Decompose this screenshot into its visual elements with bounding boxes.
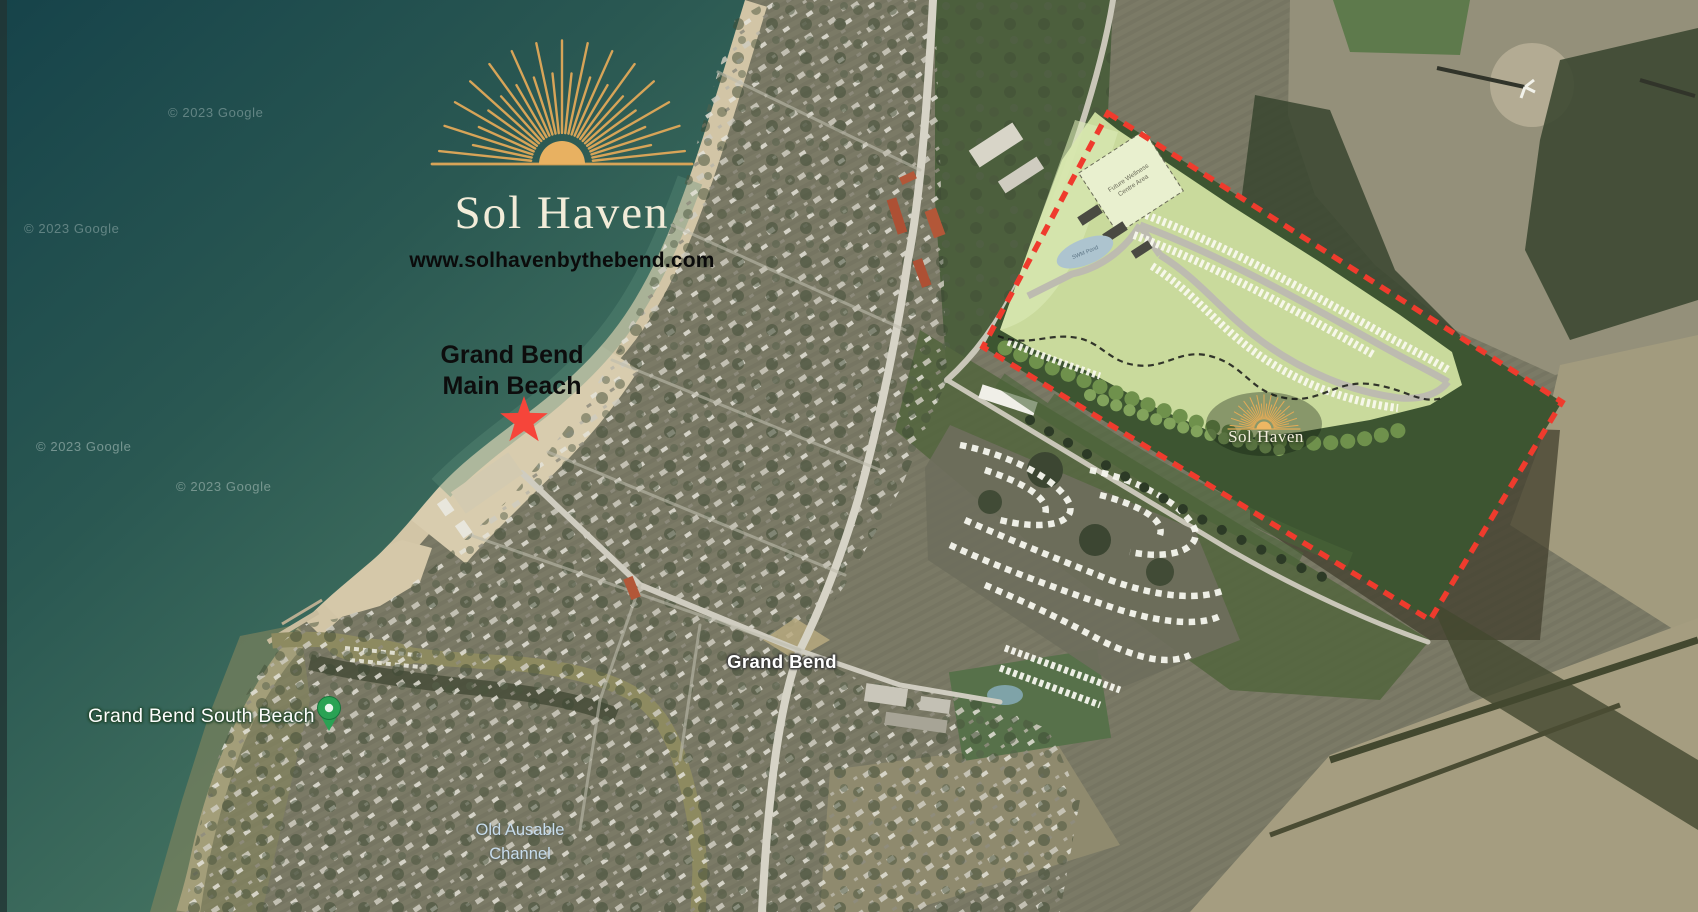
edge-strip	[0, 0, 7, 912]
google-watermark: © 2023 Google	[24, 221, 119, 236]
channel-label: Old Ausable Channel	[446, 818, 594, 866]
google-watermark: © 2023 Google	[176, 479, 271, 494]
channel-label-line1: Old Ausable	[446, 818, 594, 842]
main-beach-label: Grand Bend Main Beach	[412, 340, 612, 402]
site-plan-logo-label: Sol Haven	[1214, 427, 1318, 447]
channel-label-line2: Channel	[446, 842, 594, 866]
main-beach-label-line2: Main Beach	[412, 371, 612, 402]
logo-title: Sol Haven	[382, 186, 742, 240]
logo-website: www.solhavenbythebend.com	[398, 249, 726, 273]
satellite-map: Future Wellness Centre Area SWM Pond	[0, 0, 1698, 912]
main-beach-label-line1: Grand Bend	[412, 340, 612, 371]
google-watermark: © 2023 Google	[36, 439, 131, 454]
south-beach-label: Grand Bend South Beach	[88, 705, 308, 728]
town-label: Grand Bend	[702, 651, 862, 673]
promo-map: Future Wellness Centre Area SWM Pond Sol…	[0, 0, 1698, 912]
google-watermark: © 2023 Google	[168, 105, 263, 120]
